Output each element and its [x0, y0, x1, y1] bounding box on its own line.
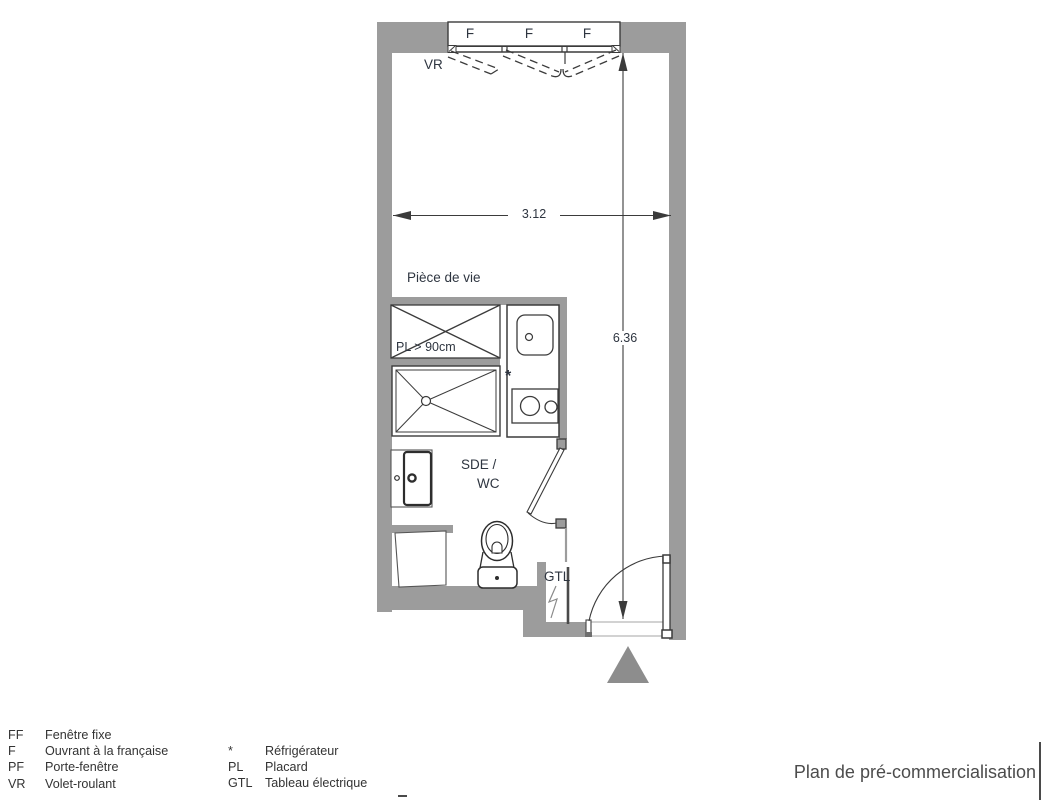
entrance-arrow-triangle — [607, 646, 649, 683]
legend-label: Volet-roulant — [45, 776, 116, 792]
legend-label: Tableau électrique — [265, 775, 367, 791]
gtl-label: GTL — [544, 569, 570, 584]
legend-row-ff: FF Fenêtre fixe — [8, 727, 168, 743]
bathroom-door-post — [556, 519, 566, 528]
legend-row-pf: PF Porte-fenêtre — [8, 759, 168, 775]
title-block-border — [1039, 742, 1041, 800]
floor-plan-drawing — [0, 0, 1046, 800]
window-sash-label-1: F — [458, 26, 482, 41]
shower-drain — [422, 397, 431, 406]
legend-column-2: * Réfrigérateur PL Placard GTL Tableau é… — [228, 743, 367, 792]
legend-label: Fenêtre fixe — [45, 727, 112, 743]
legend-abbr: PL — [228, 759, 265, 775]
page-edge-mark — [398, 795, 407, 797]
legend-row-pl: PL Placard — [228, 759, 367, 775]
legend-abbr: VR — [8, 776, 45, 792]
wall-left — [377, 22, 392, 612]
entrance-door — [585, 555, 672, 638]
toilet-seat-hinge — [492, 542, 502, 553]
sink-drain — [526, 334, 533, 341]
entrance-jamb-left — [586, 620, 591, 633]
plan-title: Plan de pré-commercialisation — [794, 762, 1036, 783]
bathroom-label-line1: SDE / — [461, 457, 496, 472]
wall-bottom-mid — [523, 622, 586, 637]
dimension-width-label: 3.12 — [508, 207, 560, 221]
legend-row-vr: VR Volet-roulant — [8, 776, 168, 792]
legend-abbr: F — [8, 743, 45, 759]
window-swing-dashes — [448, 50, 619, 77]
floor-plan-page: F F F VR 3.12 6.36 Pièce de vie PL > 90c… — [0, 0, 1046, 800]
bathroom-door-arc — [528, 513, 557, 524]
legend-abbr: PF — [8, 759, 45, 775]
kitchen-sink — [517, 315, 553, 355]
closet-label: PL > 90cm — [396, 340, 456, 354]
legend-label: Ouvrant à la française — [45, 743, 168, 759]
entrance-door-arc — [589, 556, 666, 621]
legend-abbr: GTL — [228, 775, 265, 791]
lower-cabinet — [395, 531, 446, 587]
wall-kitchen-right — [559, 297, 567, 439]
wall-top-left — [377, 22, 448, 53]
legend-row-gtl: GTL Tableau électrique — [228, 775, 367, 791]
wall-bottom-left — [377, 586, 523, 610]
toilet — [478, 522, 517, 589]
entrance-door-leaf — [663, 556, 670, 632]
legend-label: Réfrigérateur — [265, 743, 339, 759]
shower-tray — [392, 366, 500, 436]
legend-abbr: * — [228, 743, 265, 759]
wall-interior-top — [391, 297, 567, 305]
legend-label: Porte-fenêtre — [45, 759, 119, 775]
window-sash-label-2: F — [517, 26, 541, 41]
legend-label: Placard — [265, 759, 308, 775]
bathroom-door-leaf — [527, 448, 564, 514]
legend-column-1: FF Fenêtre fixe F Ouvrant à la française… — [8, 727, 168, 792]
wall-right — [669, 22, 686, 640]
living-room-label: Pièce de vie — [407, 270, 481, 285]
bathroom-door — [527, 439, 566, 528]
shutter-label: VR — [424, 57, 443, 72]
cooktop — [512, 389, 558, 423]
window-sash-label-3: F — [575, 26, 599, 41]
legend-abbr: FF — [8, 727, 45, 743]
wall-closet-shower — [391, 358, 500, 366]
legend-row-f: F Ouvrant à la française — [8, 743, 168, 759]
dimension-height-label: 6.36 — [601, 331, 649, 345]
legend-row-fridge: * Réfrigérateur — [228, 743, 367, 759]
fridge-marker: * — [505, 368, 511, 386]
bathroom-door-hinge — [557, 439, 566, 449]
washbasin-unit — [391, 450, 432, 507]
bathroom-label-line2: WC — [477, 476, 500, 491]
kitchenette — [507, 305, 559, 437]
